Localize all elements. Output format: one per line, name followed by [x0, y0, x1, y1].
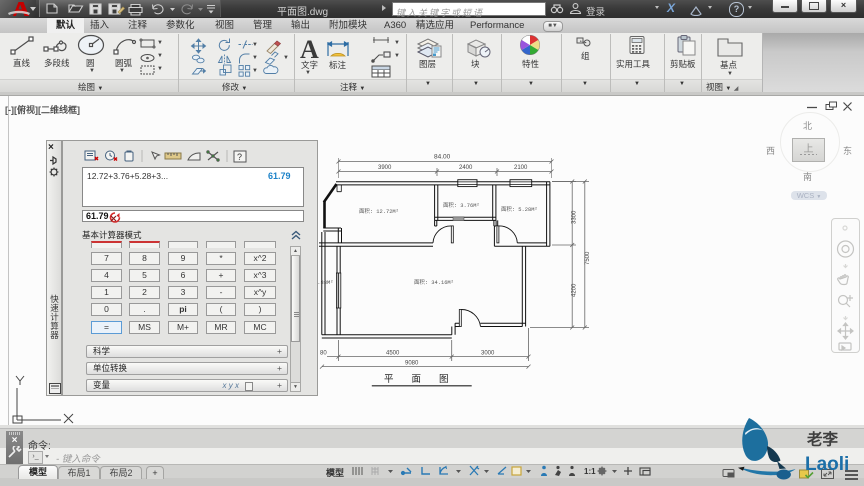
- svg-text:平面图: 平面图: [384, 374, 467, 385]
- svg-text:4200: 4200: [572, 283, 578, 297]
- svg-text:面积: 34.16M²: 面积: 34.16M²: [414, 279, 454, 286]
- svg-text:9080: 9080: [405, 360, 419, 366]
- svg-text:84.00: 84.00: [434, 154, 451, 161]
- svg-text:1:1: 1:1: [584, 467, 596, 476]
- svg-text:Laoli: Laoli: [805, 454, 849, 475]
- svg-text:3000: 3000: [481, 350, 495, 356]
- svg-text:3900: 3900: [378, 165, 392, 171]
- svg-text:?: ?: [237, 152, 242, 162]
- svg-text:老李: 老李: [806, 430, 839, 449]
- svg-text:3300: 3300: [572, 210, 578, 224]
- svg-text:面积: 12.72M²: 面积: 12.72M²: [359, 208, 399, 215]
- svg-text:2400: 2400: [459, 165, 473, 171]
- svg-text:2100: 2100: [514, 165, 528, 171]
- svg-text:面积: 5.28M²: 面积: 5.28M²: [501, 206, 538, 213]
- svg-text:面积: 3.76M²: 面积: 3.76M²: [443, 202, 480, 209]
- svg-text:80: 80: [320, 350, 327, 356]
- svg-text:7500: 7500: [585, 251, 591, 265]
- svg-text:4500: 4500: [386, 350, 400, 356]
